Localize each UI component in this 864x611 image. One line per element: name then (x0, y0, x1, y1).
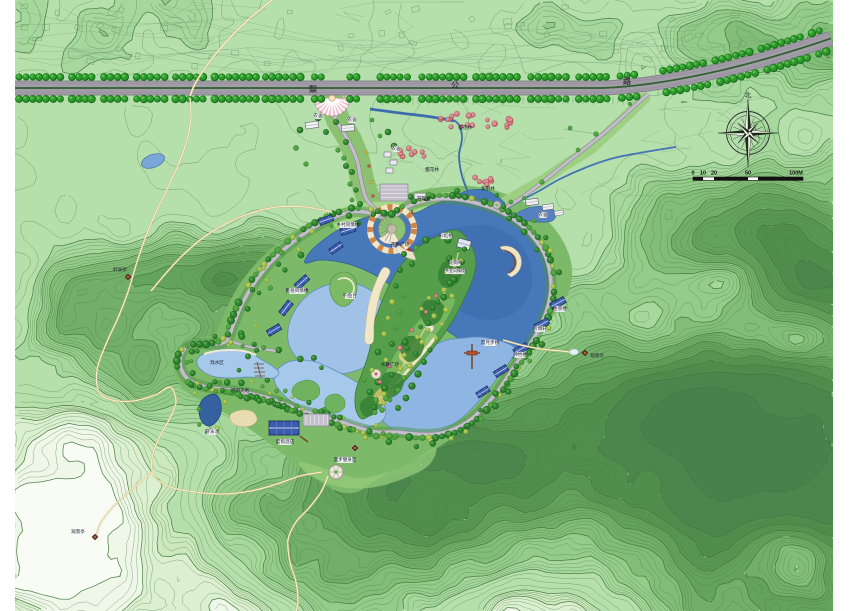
svg-text:公: 公 (451, 81, 459, 90)
svg-text:钓鱼台: 钓鱼台 (343, 292, 357, 299)
svg-text:农舍: 农舍 (391, 145, 401, 152)
svg-text:北: 北 (745, 91, 752, 99)
svg-text:梨: 梨 (308, 84, 318, 94)
svg-text:10: 10 (700, 171, 706, 177)
svg-text:神怡楼: 神怡楼 (513, 351, 527, 358)
svg-text:樱花林: 樱花林 (458, 124, 472, 131)
svg-text:水舞广场: 水舞广场 (381, 361, 400, 368)
svg-text:农舍: 农舍 (313, 112, 323, 119)
svg-text:路: 路 (623, 76, 632, 86)
svg-text:100M: 100M (789, 171, 803, 177)
svg-text:农舍: 农舍 (538, 211, 548, 218)
svg-text:管理处: 管理处 (417, 195, 431, 202)
svg-text:怡景楼: 怡景楼 (553, 305, 567, 312)
svg-text:观景亭: 观景亭 (590, 352, 604, 359)
svg-text:戏水区: 戏水区 (210, 359, 224, 366)
svg-text:彩虹桥: 彩虹桥 (439, 232, 453, 239)
svg-text:悠闲天地: 悠闲天地 (231, 387, 250, 394)
svg-text:漫步健身区: 漫步健身区 (334, 456, 357, 463)
svg-text:民俗风情楼: 民俗风情楼 (286, 287, 309, 294)
svg-text:紫荆林: 紫荆林 (481, 185, 495, 192)
svg-text:50: 50 (745, 171, 751, 177)
svg-text:农舍: 农舍 (347, 116, 357, 123)
svg-text:20: 20 (711, 171, 717, 177)
svg-text:游泳池: 游泳池 (205, 428, 219, 435)
svg-text:樱花林: 樱花林 (425, 166, 439, 173)
svg-text:观景亭: 观景亭 (71, 528, 85, 535)
svg-text:度假酒店: 度假酒店 (276, 438, 295, 445)
svg-text:花舞广场: 花舞广场 (391, 241, 410, 248)
svg-text:乡村风情楼: 乡村风情楼 (337, 221, 360, 228)
svg-text:观景阁: 观景阁 (448, 259, 462, 266)
svg-text:漫月步桥: 漫月步桥 (481, 339, 500, 346)
svg-text:听雨轩: 听雨轩 (533, 325, 547, 332)
svg-text:0: 0 (691, 171, 694, 177)
svg-text:(茶室风情楼): (茶室风情楼) (444, 267, 467, 273)
svg-text:聆泉亭: 聆泉亭 (113, 266, 127, 273)
